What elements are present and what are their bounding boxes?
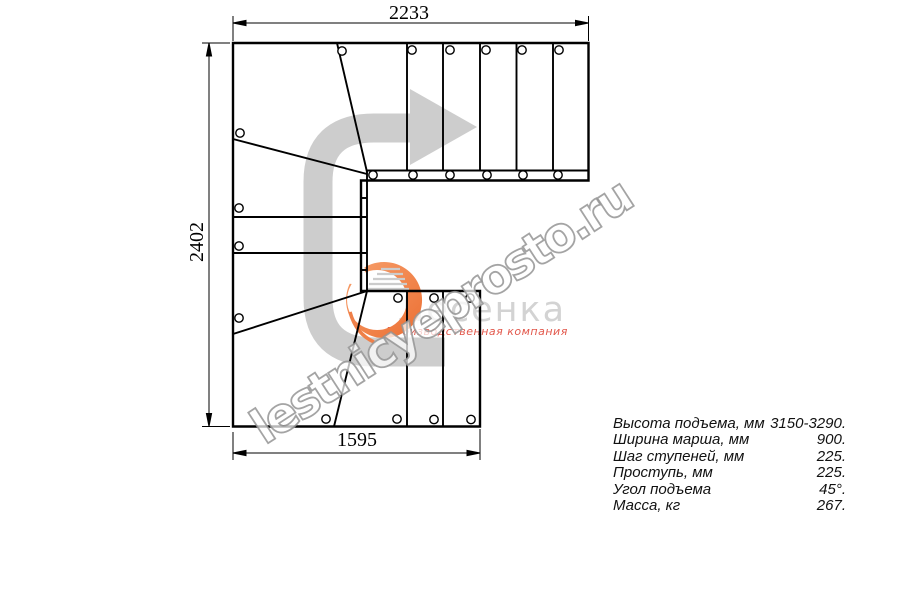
staircase-drawing-page: Лесенка Производственная компания [0, 0, 900, 600]
spec-label: Угол подъема [613, 482, 711, 498]
spec-value: 225. [817, 465, 846, 481]
screw-hole [519, 171, 527, 179]
spec-row: Масса, кг 267. [613, 498, 846, 514]
screw-hole [518, 46, 526, 54]
spec-label: Высота подъема, мм [613, 416, 765, 432]
dimension-label-top: 2233 [369, 2, 449, 25]
screw-hole [467, 415, 475, 423]
screw-hole [430, 415, 438, 423]
screw-hole [369, 171, 377, 179]
dimension-label-bottom: 1595 [317, 429, 397, 452]
spec-row: Высота подъема, мм 3150-3290. [613, 416, 846, 432]
screw-hole [555, 46, 563, 54]
screw-hole [393, 415, 401, 423]
spec-row: Шаг ступеней, мм 225. [613, 449, 846, 465]
screw-hole [408, 46, 416, 54]
spec-label: Ширина марша, мм [613, 432, 749, 448]
spec-row: Проступь, мм 225. [613, 465, 846, 481]
spec-value: 225. [817, 449, 846, 465]
screw-hole [394, 294, 402, 302]
screw-hole [235, 204, 243, 212]
spec-label: Проступь, мм [613, 465, 713, 481]
screw-hole [409, 171, 417, 179]
screw-hole [482, 46, 490, 54]
spec-value: 3150-3290. [770, 416, 846, 432]
spec-row: Ширина марша, мм 900. [613, 432, 846, 448]
spec-value: 900. [817, 432, 846, 448]
screw-hole [235, 314, 243, 322]
screw-hole [446, 46, 454, 54]
spec-row: Угол подъема 45°. [613, 482, 846, 498]
dimension-label-left: 2402 [186, 202, 208, 282]
screw-hole [235, 242, 243, 250]
spec-label: Шаг ступеней, мм [613, 449, 744, 465]
spec-label: Масса, кг [613, 498, 680, 514]
screw-hole [236, 129, 244, 137]
screw-hole [338, 47, 346, 55]
screw-hole [446, 171, 454, 179]
specs-table: Высота подъема, мм 3150-3290. Ширина мар… [613, 416, 846, 514]
spec-value: 267. [817, 498, 846, 514]
spec-value: 45°. [819, 482, 846, 498]
screw-hole [483, 171, 491, 179]
screw-hole [554, 171, 562, 179]
